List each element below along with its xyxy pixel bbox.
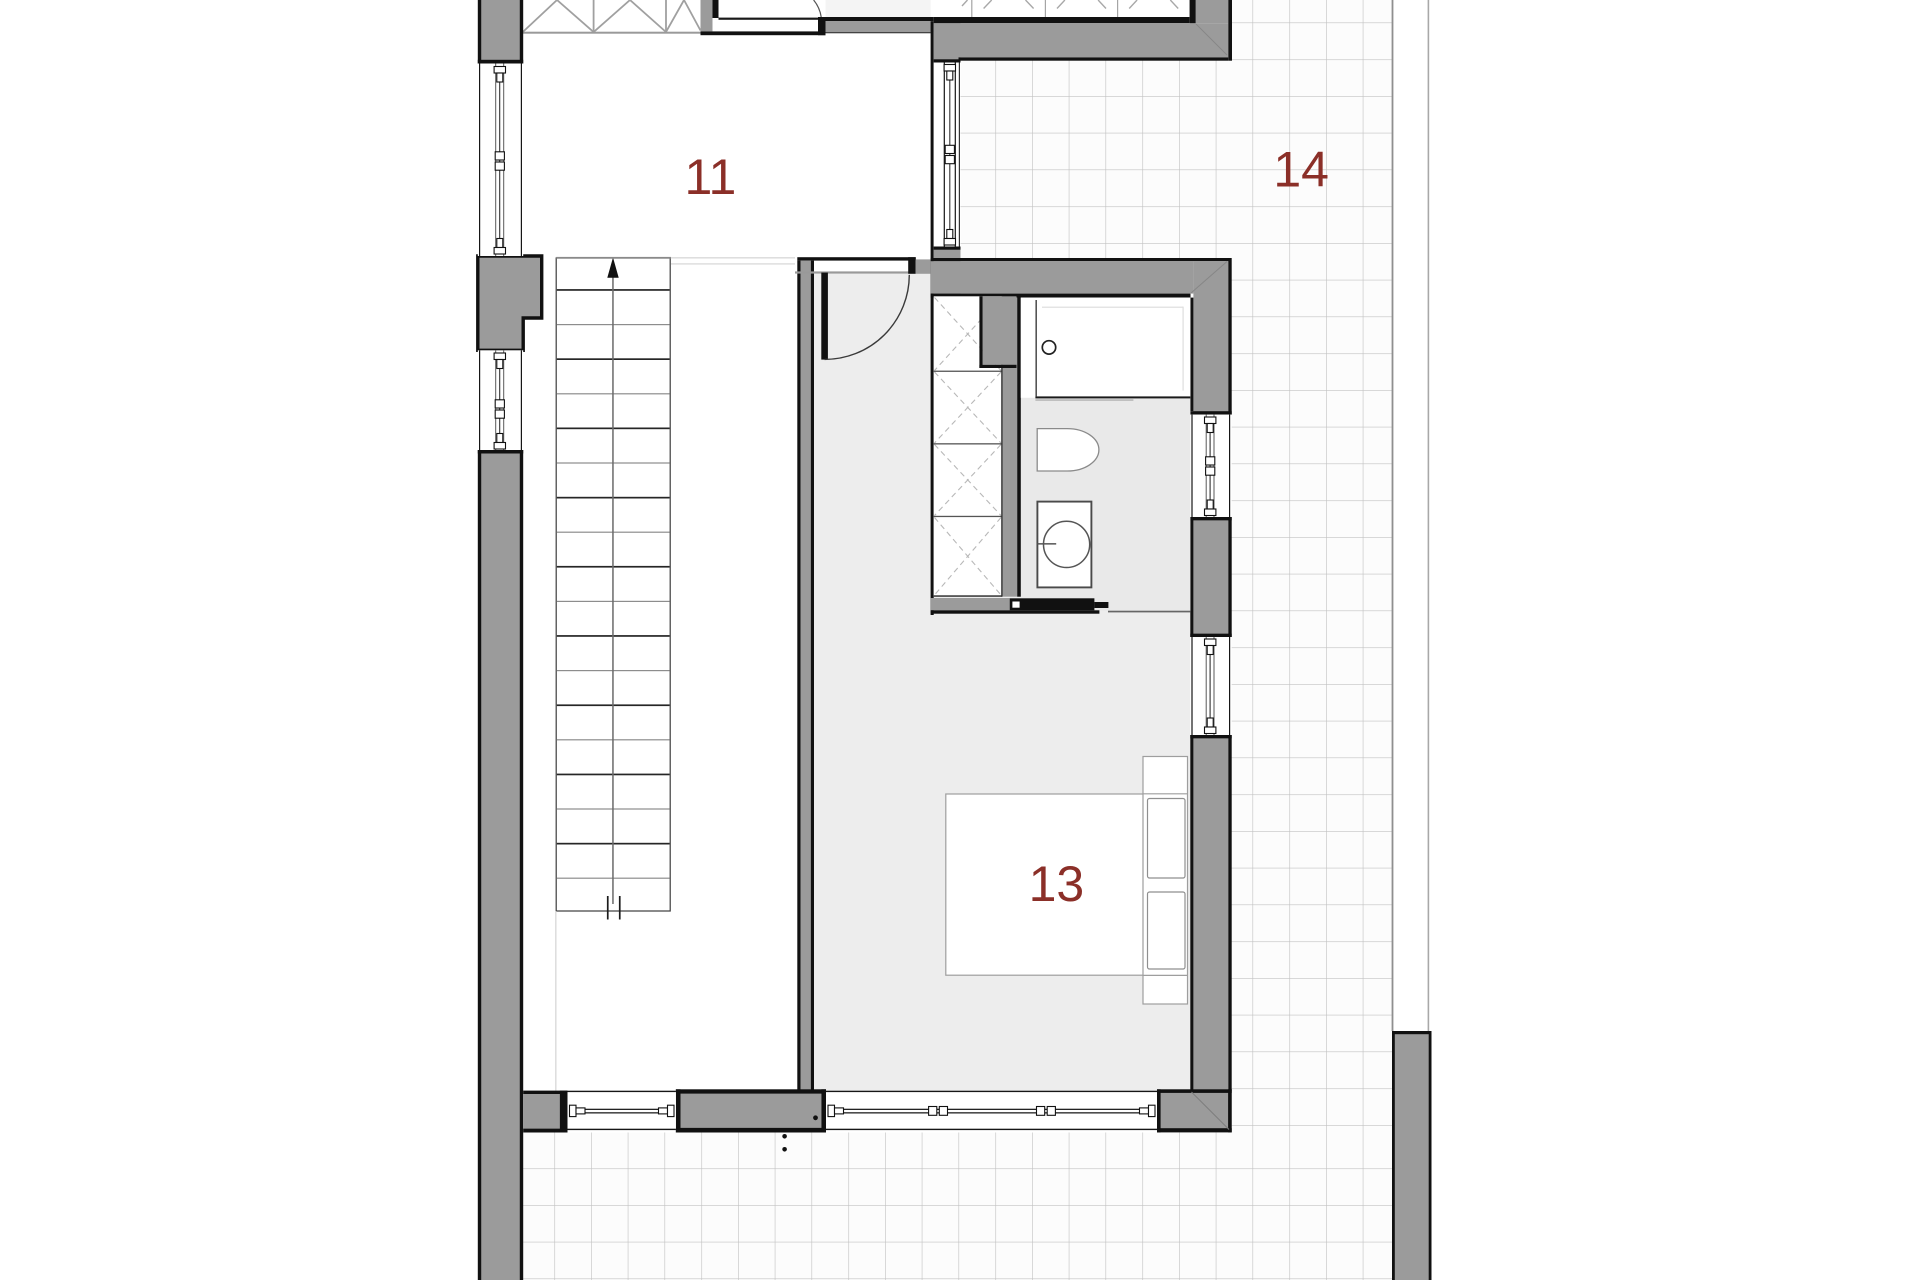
svg-text:11: 11 xyxy=(684,149,736,205)
svg-text:14: 14 xyxy=(1273,142,1329,198)
svg-text:13: 13 xyxy=(1029,856,1085,912)
